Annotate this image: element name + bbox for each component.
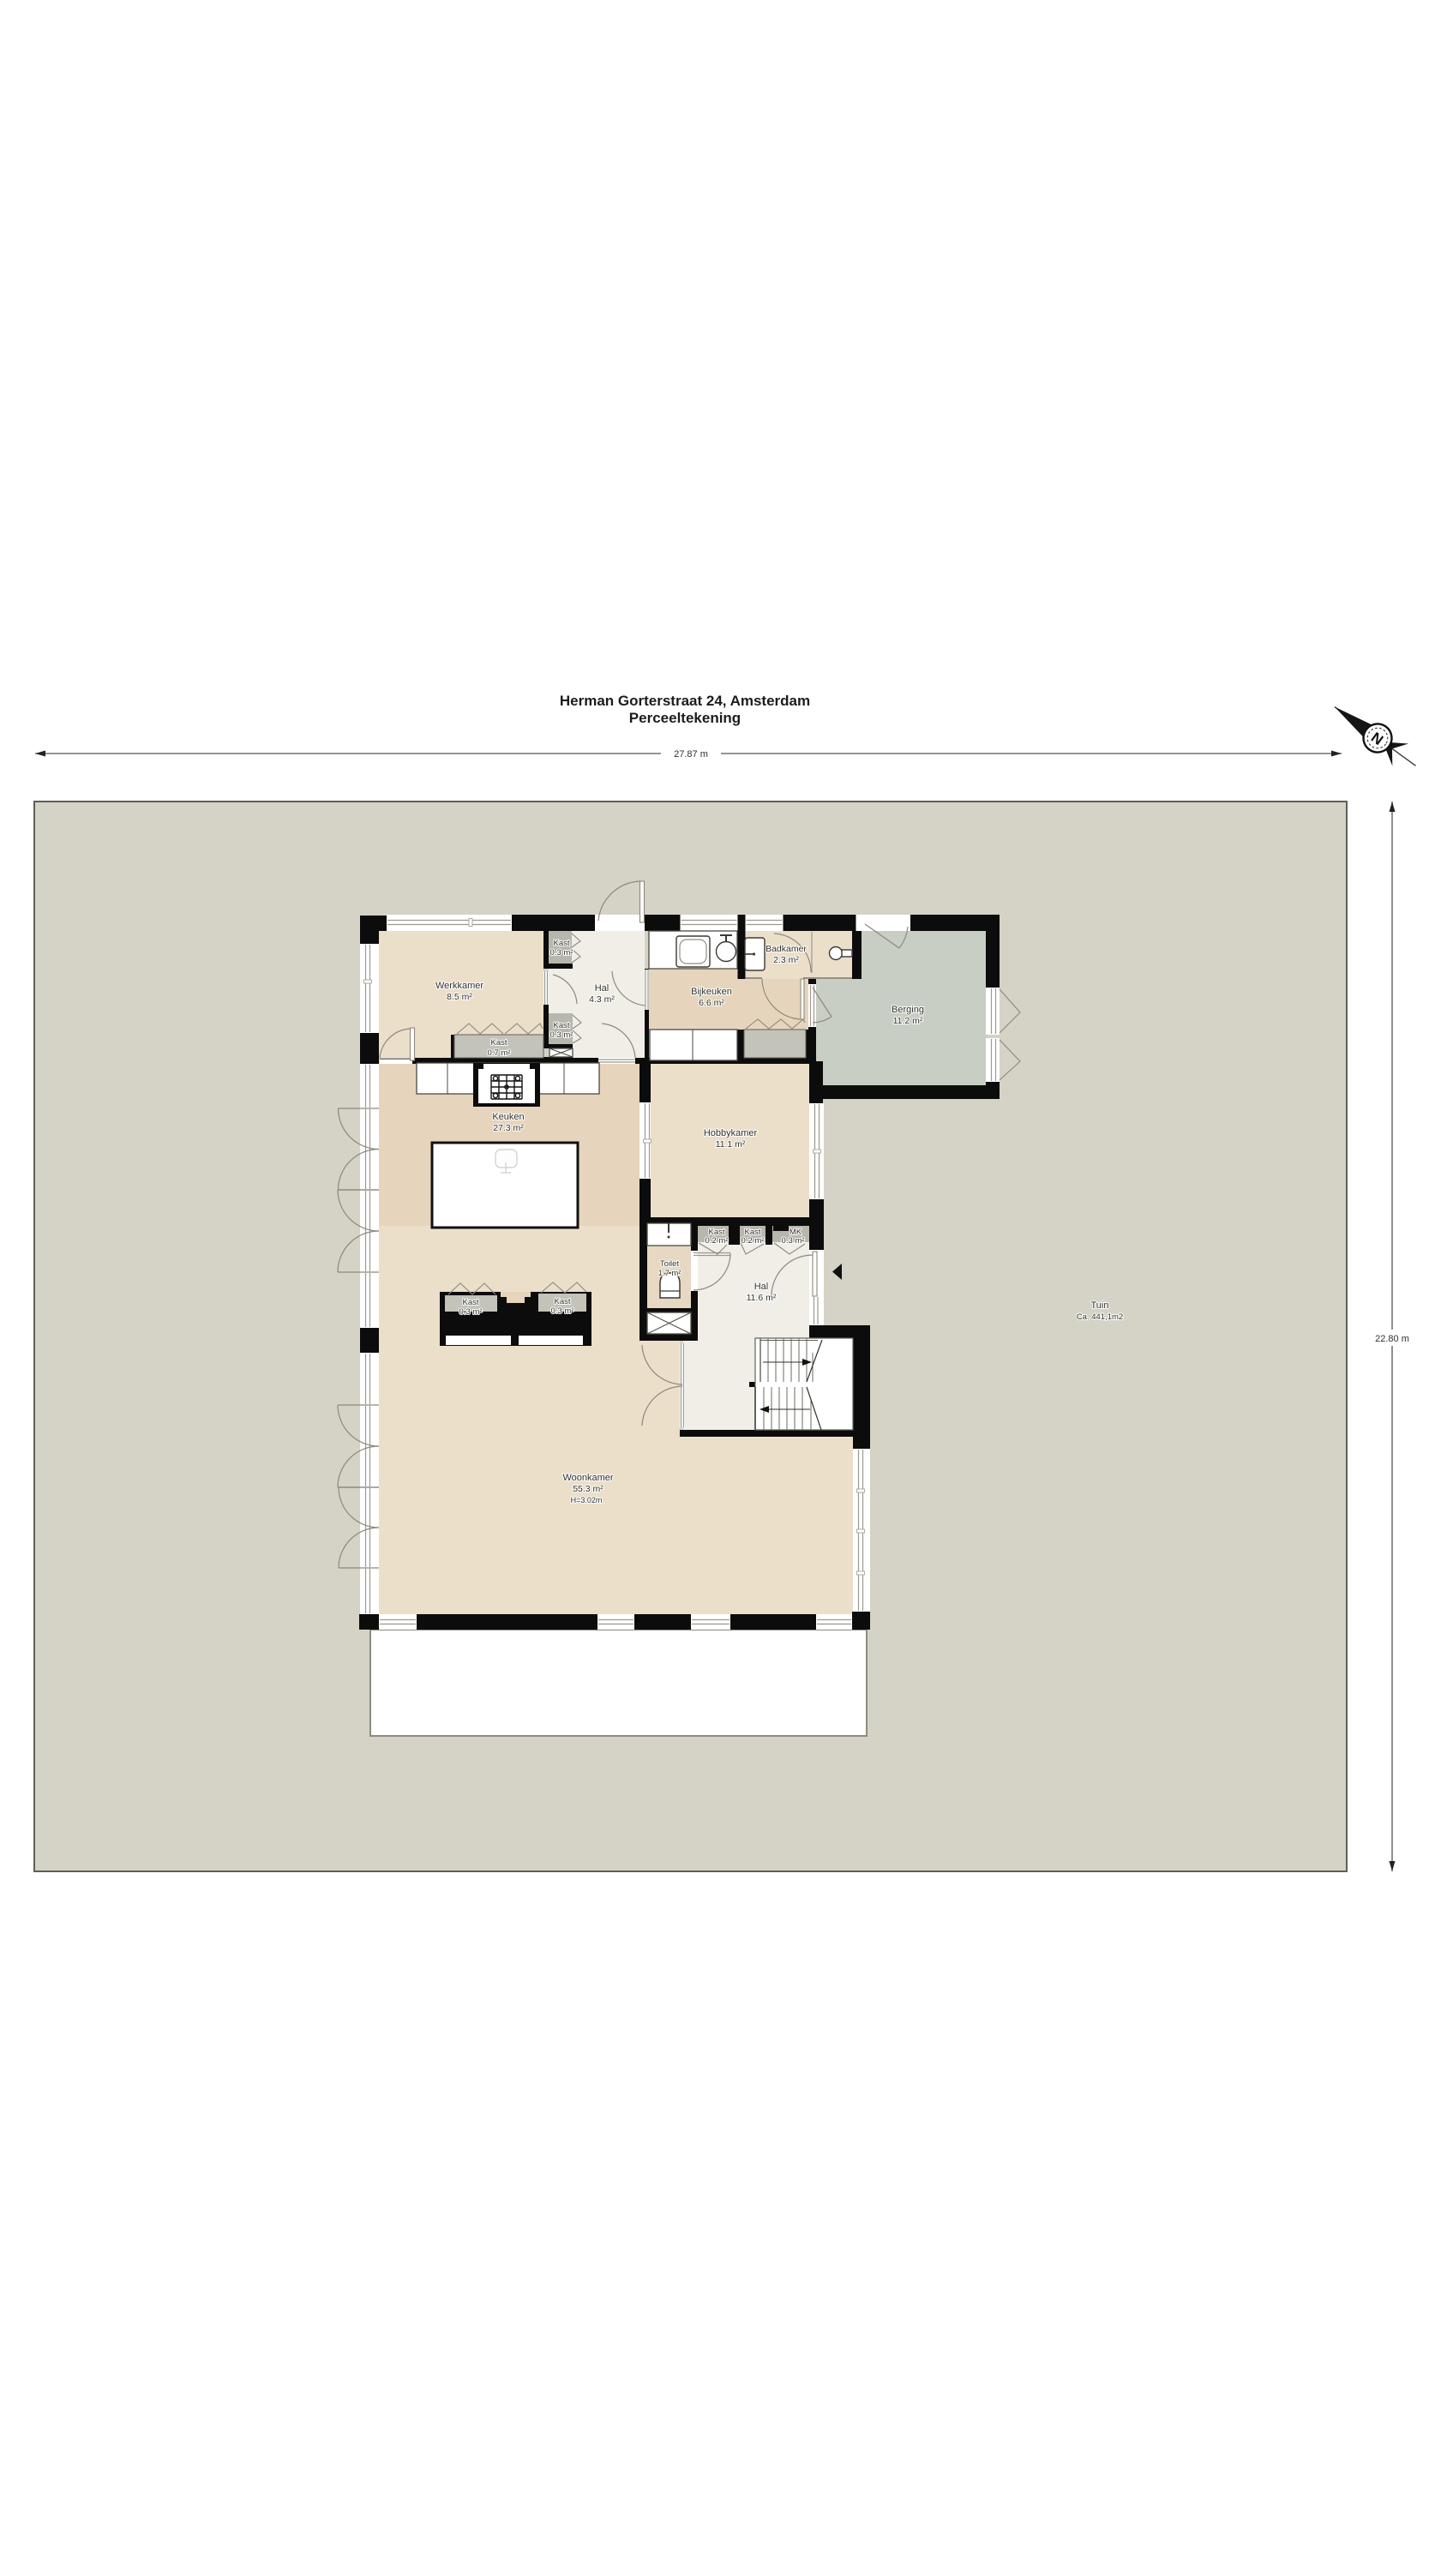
svg-text:Badkamer: Badkamer xyxy=(766,944,807,954)
svg-text:Kast: Kast xyxy=(553,1021,569,1030)
svg-text:11.1 m²: 11.1 m² xyxy=(716,1139,746,1150)
svg-text:Perceeltekening: Perceeltekening xyxy=(629,710,741,726)
svg-text:Berging: Berging xyxy=(892,1005,924,1015)
svg-text:Woonkamer: Woonkamer xyxy=(562,1473,613,1483)
svg-text:Ca. 441,1m2: Ca. 441,1m2 xyxy=(1077,1312,1123,1322)
svg-text:Herman Gorterstraat 24, Amster: Herman Gorterstraat 24, Amsterdam xyxy=(560,693,810,709)
svg-text:Keuken: Keuken xyxy=(492,1112,524,1122)
svg-text:8.5 m²: 8.5 m² xyxy=(447,992,472,1002)
svg-text:Werkkamer: Werkkamer xyxy=(435,981,483,991)
svg-text:11.2 m²: 11.2 m² xyxy=(893,1016,923,1026)
svg-text:Hal: Hal xyxy=(754,1282,769,1292)
svg-text:27.87 m: 27.87 m xyxy=(674,749,708,760)
svg-text:Toilet: Toilet xyxy=(660,1259,680,1269)
svg-text:Kast: Kast xyxy=(462,1298,478,1307)
svg-text:Kast: Kast xyxy=(490,1038,507,1048)
svg-text:2.3 m²: 2.3 m² xyxy=(773,955,799,965)
svg-text:0.2 m²: 0.2 m² xyxy=(742,1236,765,1246)
svg-text:0.3 m²: 0.3 m² xyxy=(550,948,573,958)
svg-text:4.3 m²: 4.3 m² xyxy=(589,994,615,1005)
svg-text:22.80 m: 22.80 m xyxy=(1375,1334,1409,1344)
svg-text:6.6 m²: 6.6 m² xyxy=(699,998,724,1008)
svg-text:0.2 m²: 0.2 m² xyxy=(705,1236,729,1246)
svg-text:Bijkeuken: Bijkeuken xyxy=(691,987,732,997)
svg-text:Hal: Hal xyxy=(595,983,609,994)
svg-text:0.7 m²: 0.7 m² xyxy=(488,1048,511,1058)
svg-text:0.3 m²: 0.3 m² xyxy=(551,1306,574,1316)
svg-text:H=3.02m: H=3.02m xyxy=(571,1496,603,1504)
svg-text:Tuin: Tuin xyxy=(1091,1300,1109,1311)
svg-text:0.3 m²: 0.3 m² xyxy=(550,1030,573,1040)
svg-text:Kast: Kast xyxy=(554,1297,570,1306)
svg-text:11.6 m²: 11.6 m² xyxy=(747,1293,777,1303)
svg-text:0.3 m²: 0.3 m² xyxy=(782,1236,805,1246)
svg-text:1.7 m²: 1.7 m² xyxy=(658,1269,681,1278)
svg-text:Kast: Kast xyxy=(553,939,569,948)
svg-text:Hobbykamer: Hobbykamer xyxy=(704,1128,758,1138)
svg-text:55.3 m²: 55.3 m² xyxy=(573,1484,603,1494)
svg-text:0.3 m²: 0.3 m² xyxy=(459,1307,483,1317)
svg-text:27.3 m²: 27.3 m² xyxy=(493,1123,524,1133)
